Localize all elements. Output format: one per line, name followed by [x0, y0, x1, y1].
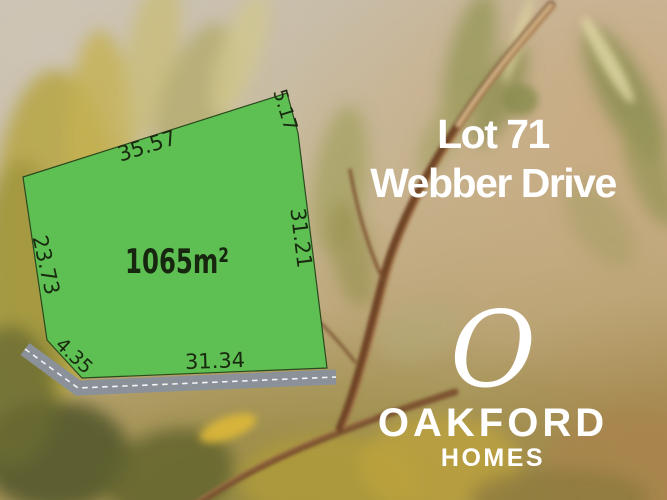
street-name: Webber Drive	[326, 159, 660, 208]
logo-monogram-o: O	[353, 300, 633, 400]
lot-area-label: 1065m²	[125, 242, 229, 282]
flyer: 1065m² 35.57 5.17 31.21 31.34 4.35 23.73…	[0, 0, 667, 500]
lot-heading: Lot 71 Webber Drive	[326, 110, 660, 208]
lot-number: Lot 71	[326, 110, 660, 159]
logo-name: OAKFORD	[353, 403, 633, 443]
dimension-bottom: 31.34	[185, 348, 246, 374]
oakford-homes-logo: O OAKFORD HOMES	[353, 300, 633, 471]
logo-tagline: HOMES	[353, 446, 633, 471]
